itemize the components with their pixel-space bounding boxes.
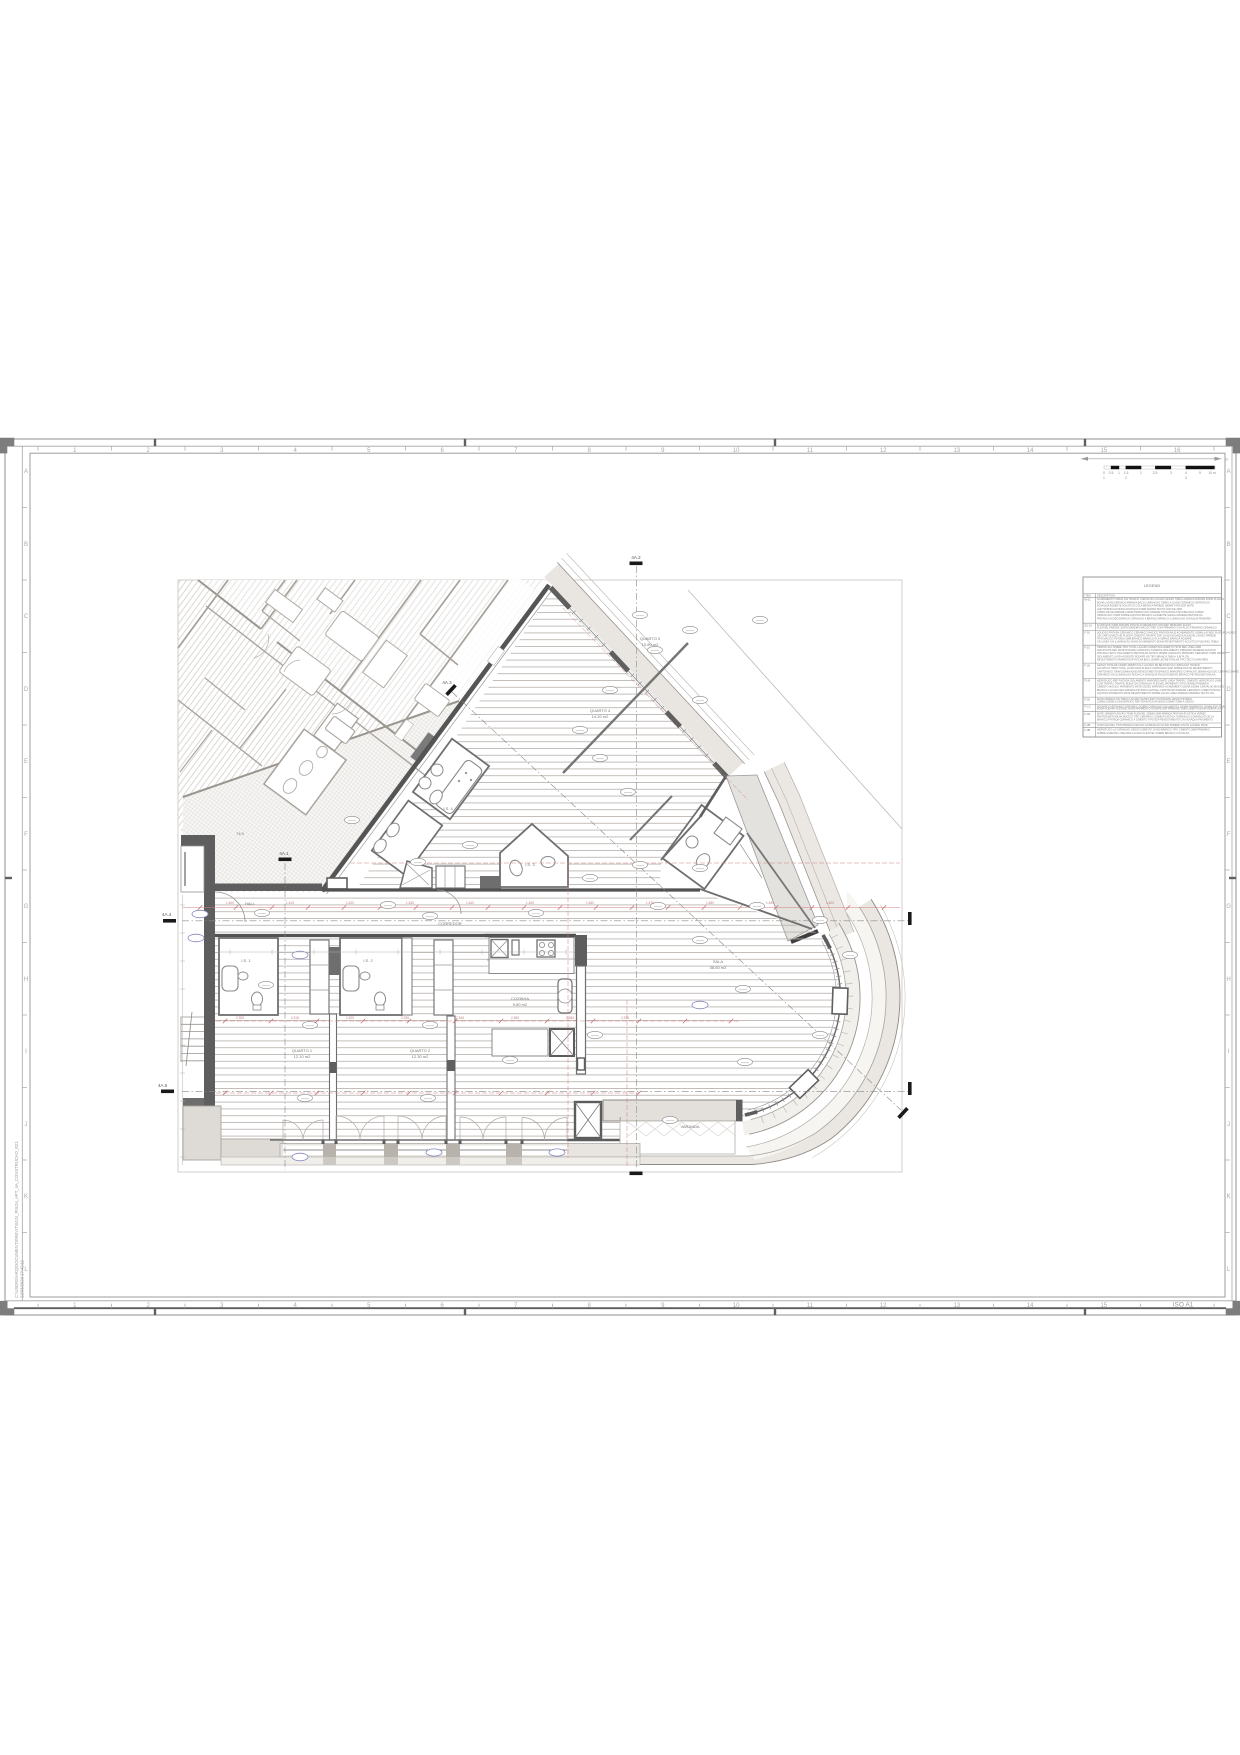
svg-text:F-20: F-20 [1085, 663, 1091, 667]
svg-text:I.S. 2: I.S. 2 [363, 958, 373, 963]
svg-text:4A.3: 4A.3 [442, 680, 452, 685]
svg-text:E: E [24, 759, 28, 765]
svg-text:HALL: HALL [245, 901, 256, 906]
svg-text:F-3B: F-3B [1085, 728, 1091, 732]
svg-text:1.410: 1.410 [286, 901, 294, 905]
svg-text:C: C [24, 614, 29, 620]
svg-text:9.80 m2: 9.80 m2 [513, 1002, 528, 1007]
svg-text:2.335: 2.335 [401, 1016, 409, 1020]
svg-text:SALA: SALA [713, 959, 724, 964]
svg-text:REVESTIMENTO ARMADA ESP ROCHA: REVESTIMENTO ARMADA ESP ROCHA BA13 100MM… [1097, 658, 1208, 661]
svg-text:AQUOSO PAVIMENTO MATE REVESTIM: AQUOSO PAVIMENTO MATE REVESTIMENTO SOBRE… [1097, 692, 1214, 695]
svg-text:2.325: 2.325 [346, 1016, 354, 1020]
svg-text:ITEM: ITEM [1085, 594, 1091, 598]
svg-text:0.5: 0.5 [1109, 471, 1114, 475]
svg-text:74.0: 74.0 [236, 831, 245, 836]
svg-text:125MM 100MM 10-600 BRANCO REF: 125MM 100MM 10-600 BRANCO REF 60X60 ROCH… [1097, 700, 1194, 703]
svg-text:3: 3 [1170, 471, 1172, 475]
svg-text:F-1B: F-1B [1085, 712, 1091, 716]
svg-text:1.5: 1.5 [1124, 471, 1129, 475]
svg-text:2.365: 2.365 [566, 1016, 574, 1020]
svg-text:G: G [24, 904, 29, 910]
svg-text:QUARTO 2: QUARTO 2 [410, 1048, 431, 1053]
svg-text:10: 10 [733, 1303, 740, 1309]
svg-text:14.20 m2: 14.20 m2 [592, 714, 609, 719]
svg-text:DESCRIPTION: DESCRIPTION [1097, 594, 1115, 598]
svg-text:I.S. 4: I.S. 4 [443, 806, 453, 811]
svg-text:m: m [1225, 458, 1228, 462]
svg-text:D: D [24, 687, 29, 693]
svg-text:B: B [1227, 542, 1231, 548]
svg-text:A: A [24, 469, 28, 475]
svg-text:16: 16 [1174, 448, 1181, 454]
svg-text:13: 13 [953, 1303, 960, 1309]
svg-text:FLEXIVEL PAREDE JUNTA MADEIRA: FLEXIVEL PAREDE JUNTA MADEIRA MACICO REF… [1097, 627, 1217, 630]
svg-text:3: 3 [1185, 476, 1187, 480]
svg-text:PINTADA LACADO BRANCO CARVALHO: PINTADA LACADO BRANCO CARVALHO A BRANCO … [1097, 617, 1211, 620]
svg-text:1.480: 1.480 [706, 901, 714, 905]
svg-text:F-2.2: F-2.2 [1085, 705, 1092, 709]
svg-text:11: 11 [807, 1303, 814, 1309]
svg-text:VARANDA: VARANDA [680, 1124, 699, 1129]
svg-text:SC-10: SC-10 [1085, 623, 1093, 627]
svg-text:12: 12 [880, 448, 887, 454]
svg-text:2.345: 2.345 [456, 1016, 464, 1020]
svg-text:QUARTO 4: QUARTO 4 [590, 708, 611, 713]
svg-text:10: 10 [733, 448, 740, 454]
svg-text:4: 4 [1185, 471, 1187, 475]
svg-text:1.470: 1.470 [646, 901, 654, 905]
svg-text:E: E [1227, 759, 1231, 765]
svg-text:QUARTO 1: QUARTO 1 [292, 1048, 313, 1053]
svg-text:G: G [1226, 904, 1231, 910]
svg-text:QUARTO 3: QUARTO 3 [640, 636, 661, 641]
svg-text:1.490: 1.490 [766, 901, 774, 905]
svg-text:F-2B: F-2B [1085, 723, 1091, 727]
svg-text:1.400: 1.400 [226, 901, 234, 905]
svg-text:15.80 m2: 15.80 m2 [642, 642, 659, 647]
svg-text:1.420: 1.420 [346, 901, 354, 905]
svg-text:1.450: 1.450 [526, 901, 534, 905]
svg-text:H: H [1226, 977, 1230, 983]
svg-text:J: J [25, 1122, 28, 1128]
svg-text:5: 5 [1199, 471, 1201, 475]
svg-text:J: J [1227, 1122, 1230, 1128]
svg-text:2.305: 2.305 [236, 1016, 244, 1020]
svg-text:22/03/2023 17:42:11: 22/03/2023 17:42:11 [20, 1259, 25, 1298]
svg-text:14: 14 [1027, 1303, 1034, 1309]
svg-text:13: 13 [953, 448, 960, 454]
svg-text:15: 15 [1100, 1303, 1107, 1309]
svg-text:CORREDOR: CORREDOR [438, 921, 461, 926]
svg-text:1: 1 [1103, 476, 1105, 480]
svg-text:1.430: 1.430 [406, 901, 414, 905]
svg-text:K: K [1227, 1194, 1231, 1200]
svg-text:15: 15 [1100, 448, 1107, 454]
svg-text:1.440: 1.440 [466, 901, 474, 905]
svg-text:F: F [24, 832, 28, 838]
svg-text:4A.4: 4A.4 [162, 912, 172, 917]
svg-text:COZINHA: COZINHA [511, 996, 529, 1001]
svg-text:F1-B: F1-B [1085, 679, 1091, 683]
svg-text:F: F [1227, 832, 1231, 838]
svg-text:LEGEND: LEGEND [1144, 583, 1161, 588]
svg-text:C:\USERS\ARQ\DOCUMENTS\REVIT\0: C:\USERS\ARQ\DOCUMENTS\REVIT\0424_PISO4_… [14, 1140, 19, 1298]
svg-text:W-01: W-01 [1085, 598, 1092, 602]
svg-text:CERAMICO HD ILUMINACAO ROCHA L: CERAMICO HD ILUMINACAO ROCHA LA NOVAQUA … [1097, 674, 1216, 677]
svg-text:F-02: F-02 [1085, 697, 1091, 701]
svg-text:12.10 m2: 12.10 m2 [294, 1054, 311, 1059]
svg-text:1.460: 1.460 [586, 901, 594, 905]
svg-text:4A.1: 4A.1 [279, 851, 289, 856]
svg-text:4A.2: 4A.2 [631, 555, 641, 560]
svg-text:I.S. 3: I.S. 3 [525, 862, 535, 867]
svg-text:38.60 m2: 38.60 m2 [710, 965, 727, 970]
svg-text:10 m: 10 m [1208, 471, 1216, 475]
svg-text:2.355: 2.355 [511, 1016, 519, 1020]
svg-text:1.400: 1.400 [826, 901, 834, 905]
svg-text:4A.5: 4A.5 [158, 1083, 168, 1088]
svg-text:K: K [24, 1194, 28, 1200]
svg-text:ISO A1: ISO A1 [1173, 1302, 1194, 1309]
svg-text:12.30 m2: 12.30 m2 [412, 1054, 429, 1059]
svg-text:14: 14 [1027, 448, 1034, 454]
svg-text:C: C [1226, 614, 1231, 620]
svg-text:COM FLEXIVEL TINTA BRANCA MACI: COM FLEXIVEL TINTA BRANCA MACICO ILUMINA… [1097, 724, 1208, 727]
svg-text:B: B [24, 542, 28, 548]
svg-text:CIN LINEA CIN ILUMINACAO 60X60: CIN LINEA CIN ILUMINACAO 60X60 ACABAMENT… [1097, 641, 1219, 644]
svg-text:12: 12 [880, 1303, 887, 1309]
svg-text:F-10: F-10 [1085, 645, 1091, 649]
svg-text:0: 0 [1103, 471, 1105, 475]
svg-text:D: D [1226, 687, 1231, 693]
svg-text:SOBRE ASSENTE LINEA REF LACADO: SOBRE ASSENTE LINEA REF LACADO FLEXIVEL … [1097, 732, 1189, 735]
svg-text:BRANCO PINTADA CERAMICO A CIME: BRANCO PINTADA CERAMICO A CIMENTO TIPO E… [1097, 718, 1213, 721]
svg-text:2: 2 [1125, 476, 1127, 480]
svg-text:1: 1 [1118, 471, 1120, 475]
svg-text:2.315: 2.315 [291, 1016, 299, 1020]
svg-text:H: H [24, 977, 28, 983]
svg-text:A: A [1227, 469, 1231, 475]
svg-text:2.5: 2.5 [1153, 471, 1158, 475]
svg-text:2.375: 2.375 [621, 1016, 629, 1020]
svg-text:2: 2 [1140, 471, 1142, 475]
svg-text:11: 11 [807, 448, 814, 454]
svg-text:BONA RODAPE FLEXIVEL 60X60 PAV: BONA RODAPE FLEXIVEL 60X60 PAVIMENTO ROD… [1097, 708, 1222, 711]
svg-text:I.S. 1: I.S. 1 [241, 958, 251, 963]
svg-text:F-01: F-01 [1085, 631, 1091, 635]
